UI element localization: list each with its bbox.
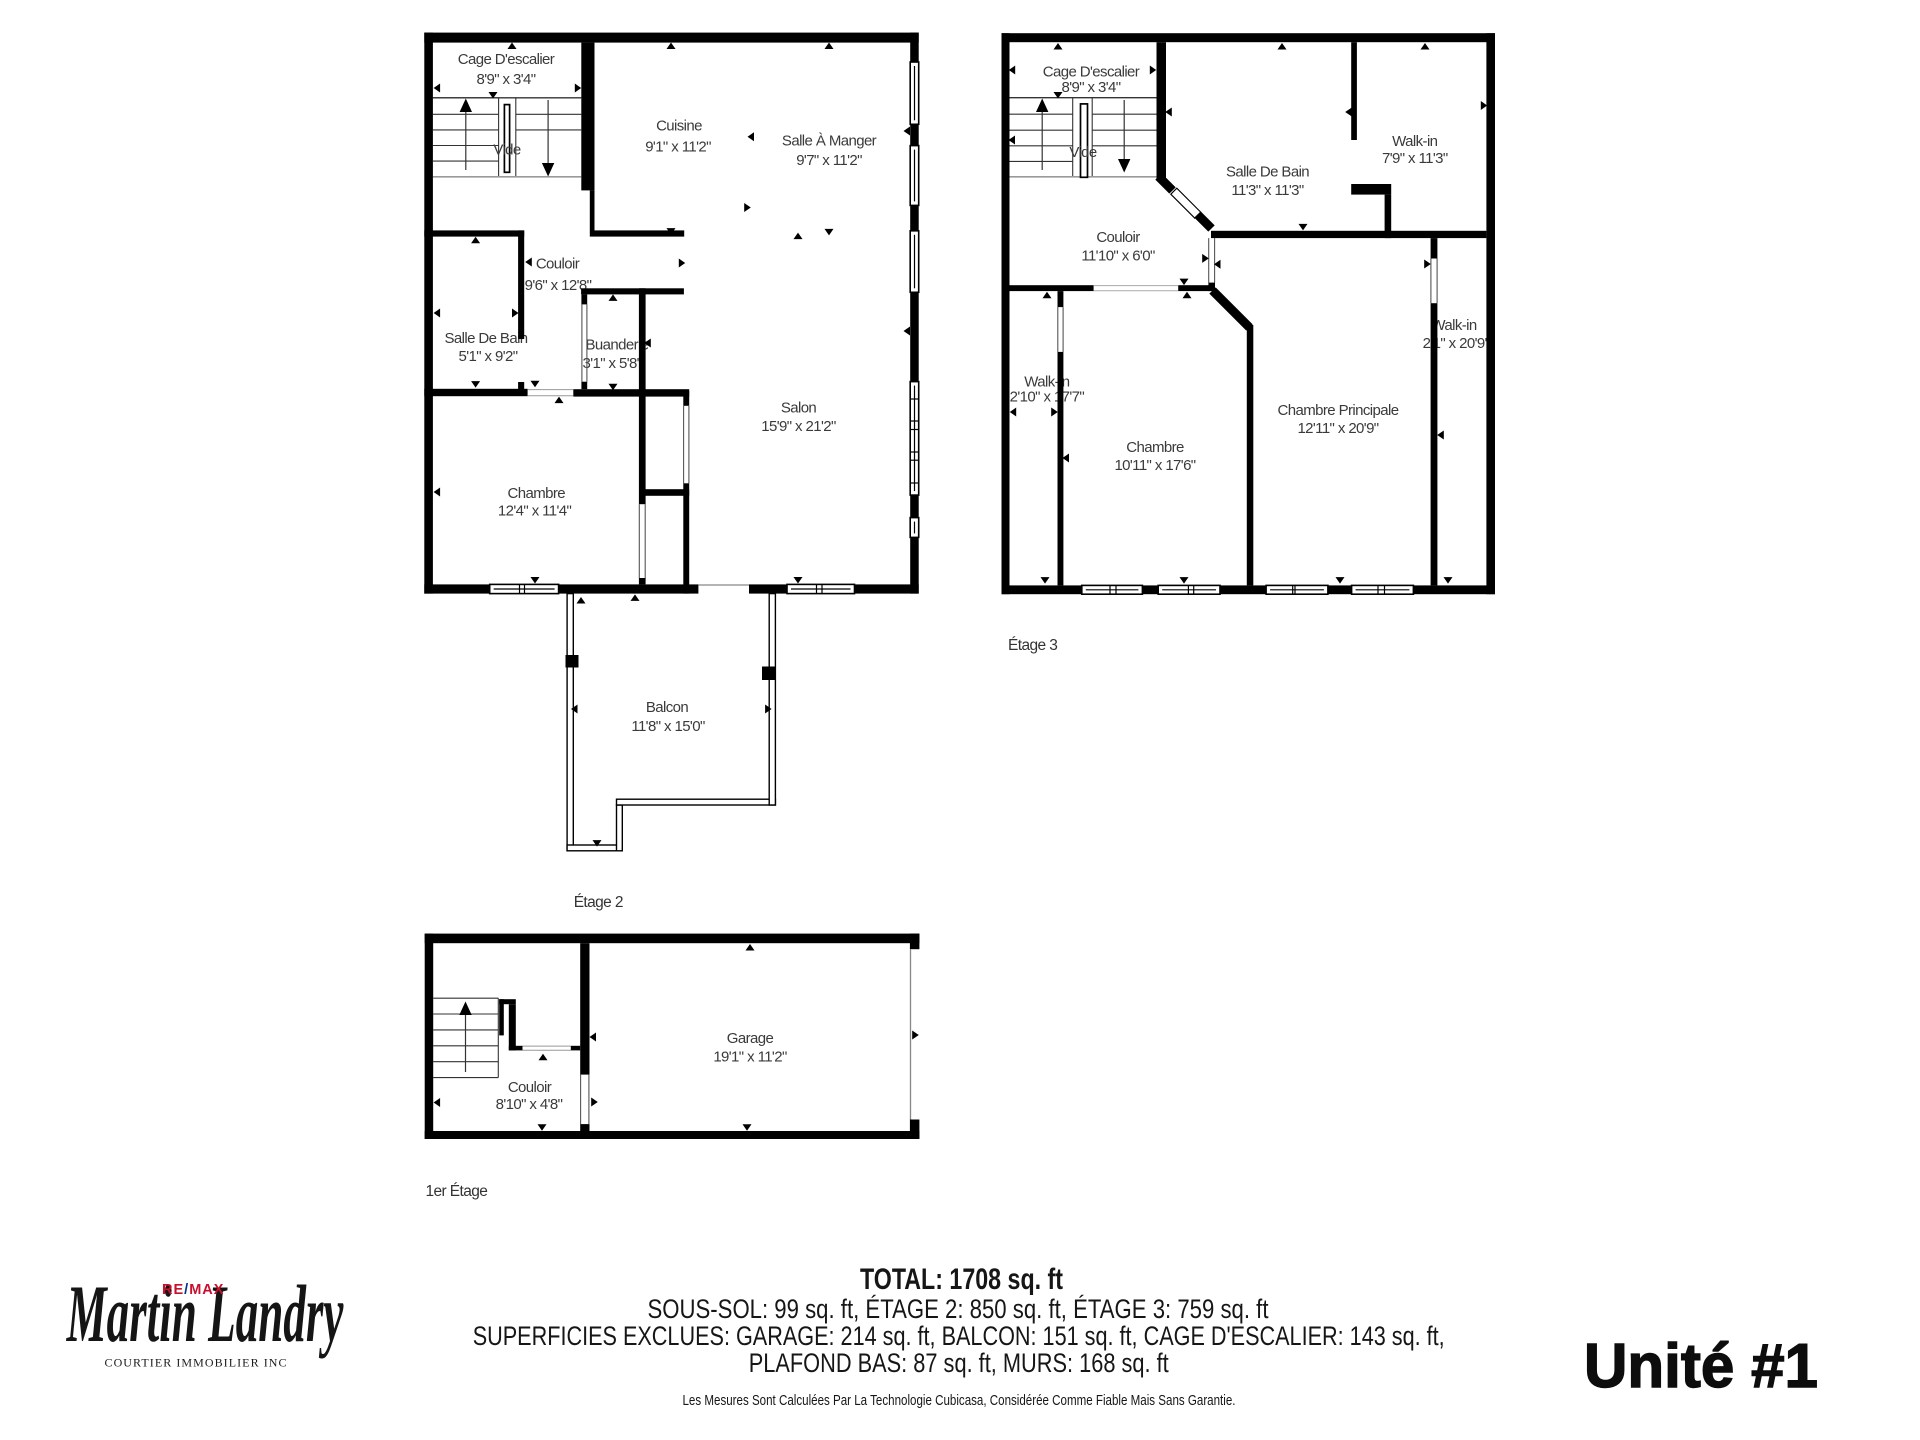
svg-text:Les Mesures Sont Calculées Par: Les Mesures Sont Calculées Par La Techno…: [683, 1393, 1236, 1409]
svg-text:8'9" x 3'4": 8'9" x 3'4": [1062, 79, 1121, 96]
svg-text:5'1" x 9'2": 5'1" x 9'2": [459, 348, 518, 365]
svg-text:Salle À Manger: Salle À Manger: [782, 133, 877, 150]
svg-text:Vide: Vide: [493, 142, 521, 159]
svg-text:7'9" x 11'3": 7'9" x 11'3": [1382, 150, 1448, 167]
svg-text:Étage 3: Étage 3: [1008, 637, 1057, 654]
svg-text:8'9" x 3'4": 8'9" x 3'4": [477, 71, 536, 88]
svg-text:9'1" x 11'2": 9'1" x 11'2": [645, 139, 711, 156]
svg-text:Étage 2: Étage 2: [574, 894, 623, 911]
svg-text:3'1" x 5'8": 3'1" x 5'8": [583, 355, 642, 372]
svg-text:Couloir: Couloir: [1096, 229, 1140, 246]
svg-text:RE/MAX: RE/MAX: [162, 1282, 224, 1298]
svg-text:Chambre: Chambre: [508, 485, 566, 502]
svg-text:12'11" x 20'9": 12'11" x 20'9": [1297, 420, 1378, 437]
svg-text:11'10" x 6'0": 11'10" x 6'0": [1081, 248, 1155, 265]
svg-text:COURTIER IMMOBILIER INC: COURTIER IMMOBILIER INC: [105, 1356, 287, 1370]
svg-text:10'11" x 17'6": 10'11" x 17'6": [1114, 457, 1195, 474]
svg-text:Cuisine: Cuisine: [656, 118, 702, 135]
svg-text:PLAFOND BAS: 87 sq. ft, MURS:: PLAFOND BAS: 87 sq. ft, MURS: 168 sq. ft: [749, 1348, 1169, 1378]
svg-text:Couloir: Couloir: [536, 256, 580, 273]
svg-text:Chambre: Chambre: [1126, 439, 1184, 456]
svg-text:Unité #1: Unité #1: [1584, 1332, 1818, 1401]
svg-text:Chambre Principale: Chambre Principale: [1278, 402, 1399, 419]
svg-text:Walk-in: Walk-in: [1431, 317, 1477, 334]
svg-text:Balcon: Balcon: [646, 699, 689, 716]
svg-text:SOUS-SOL: 99 sq. ft, ÉTAGE 2:: SOUS-SOL: 99 sq. ft, ÉTAGE 2: 850 sq. ft…: [648, 1294, 1269, 1324]
svg-text:11'3" x 11'3": 11'3" x 11'3": [1231, 182, 1304, 199]
svg-text:Cage D'escalier: Cage D'escalier: [1043, 64, 1140, 81]
svg-text:TOTAL: 1708 sq. ft: TOTAL: 1708 sq. ft: [860, 1263, 1063, 1296]
svg-text:Garage: Garage: [727, 1030, 774, 1047]
svg-text:2'10" x 17'7": 2'10" x 17'7": [1010, 389, 1085, 406]
svg-text:19'1" x 11'2": 19'1" x 11'2": [713, 1049, 787, 1066]
svg-text:Salon: Salon: [781, 399, 817, 416]
svg-text:1er Étage: 1er Étage: [426, 1183, 488, 1200]
svg-text:SUPERFICIES EXCLUES: GARAGE: 2: SUPERFICIES EXCLUES: GARAGE: 214 sq. ft,…: [473, 1321, 1445, 1351]
svg-text:Couloir: Couloir: [508, 1079, 552, 1096]
svg-text:Walk-in: Walk-in: [1392, 133, 1438, 150]
svg-text:11'8" x 15'0": 11'8" x 15'0": [631, 718, 705, 735]
svg-text:9'7" x 11'2": 9'7" x 11'2": [796, 152, 862, 169]
svg-text:12'4" x 11'4": 12'4" x 11'4": [498, 503, 572, 520]
svg-text:Salle De Bain: Salle De Bain: [444, 330, 527, 347]
svg-text:Cage D'escalier: Cage D'escalier: [458, 51, 555, 68]
svg-text:8'10" x 4'8": 8'10" x 4'8": [496, 1096, 563, 1113]
svg-text:15'9" x 21'2": 15'9" x 21'2": [761, 418, 836, 435]
svg-text:Salle De Bain: Salle De Bain: [1226, 164, 1309, 181]
svg-text:Vide: Vide: [1069, 144, 1097, 161]
